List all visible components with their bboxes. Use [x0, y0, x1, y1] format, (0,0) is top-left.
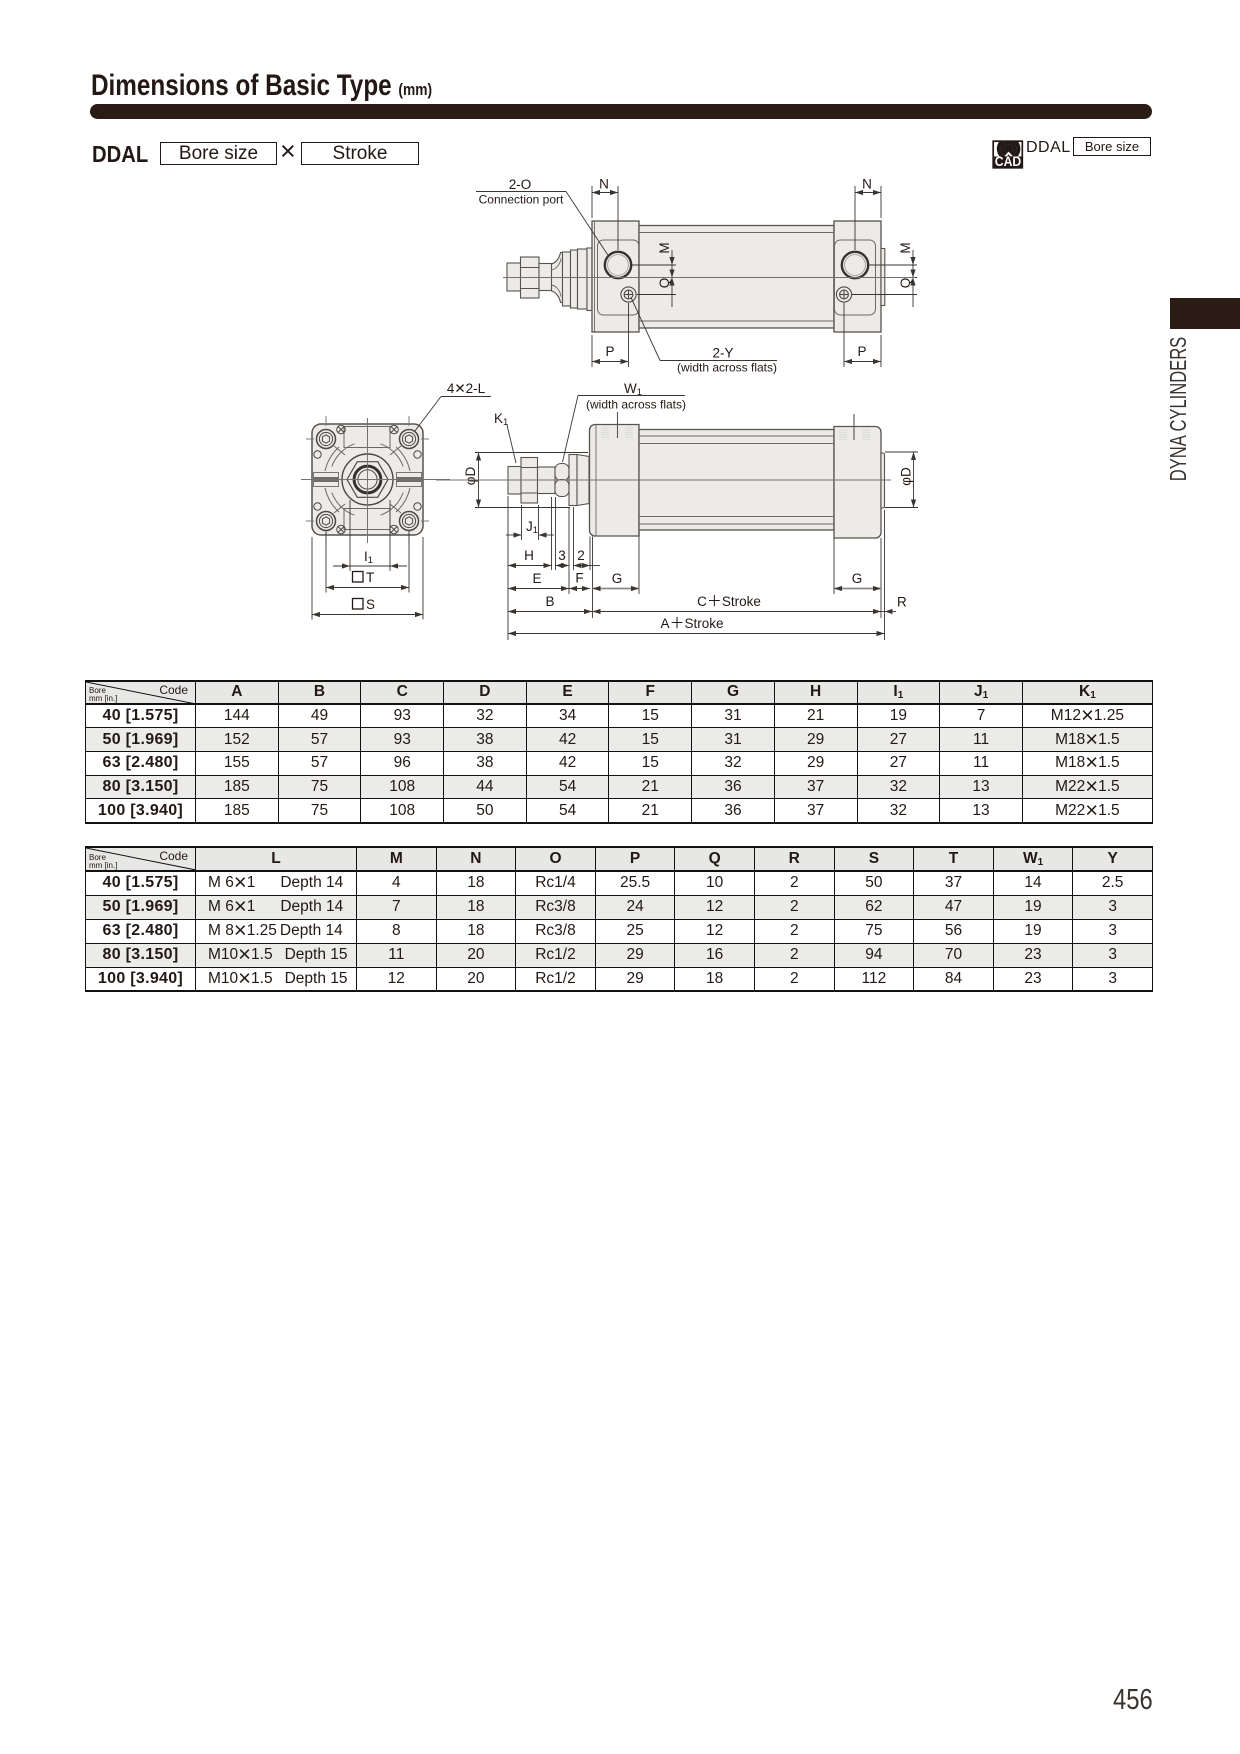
svg-text:F: F: [575, 571, 583, 586]
svg-text:Connection port: Connection port: [479, 193, 564, 207]
svg-text:N: N: [599, 177, 609, 192]
svg-text:H: H: [524, 548, 534, 563]
svg-text:Q: Q: [657, 278, 672, 289]
svg-text:3: 3: [558, 548, 566, 563]
svg-text:J1: J1: [526, 519, 538, 536]
svg-text:M: M: [657, 242, 672, 253]
svg-text:A＋Stroke: A＋Stroke: [660, 615, 723, 632]
svg-text:P: P: [605, 344, 614, 359]
svg-text:M: M: [898, 242, 913, 253]
svg-text:P: P: [857, 344, 866, 359]
svg-text:Q: Q: [898, 278, 913, 289]
svg-text:S: S: [366, 597, 375, 612]
svg-text:2-Y: 2-Y: [712, 346, 733, 361]
svg-text:I1: I1: [364, 549, 373, 566]
svg-text:T: T: [366, 570, 374, 585]
svg-text:(width across flats): (width across flats): [677, 361, 777, 375]
svg-text:B: B: [545, 594, 554, 609]
svg-text:2-O: 2-O: [509, 177, 532, 192]
svg-text:2: 2: [577, 548, 585, 563]
svg-text:(width across flats): (width across flats): [586, 398, 686, 412]
svg-text:φD: φD: [899, 467, 914, 486]
svg-text:N: N: [862, 177, 872, 192]
svg-text:C＋Stroke: C＋Stroke: [697, 593, 761, 610]
svg-text:φD: φD: [463, 467, 478, 486]
svg-text:G: G: [612, 571, 623, 586]
svg-text:R: R: [897, 595, 907, 610]
svg-text:K1: K1: [494, 411, 508, 428]
svg-text:E: E: [532, 571, 541, 586]
svg-text:G: G: [852, 571, 863, 586]
svg-text:4✕2-L: 4✕2-L: [447, 381, 486, 396]
